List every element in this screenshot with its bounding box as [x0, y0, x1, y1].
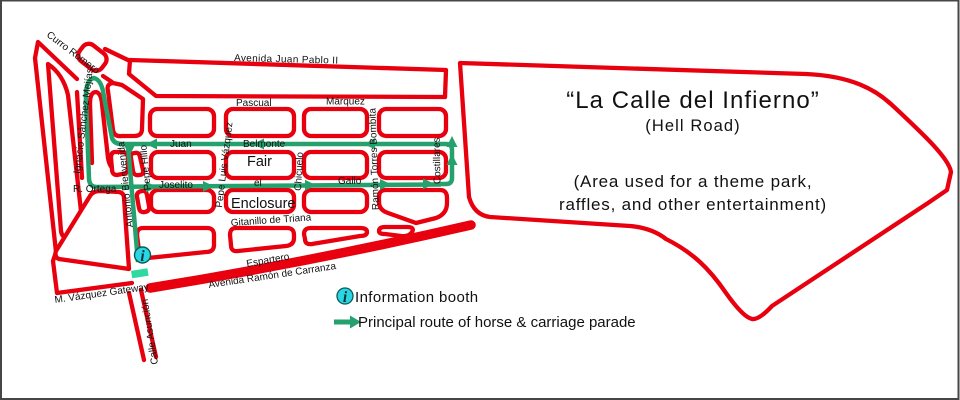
svg-text:(Hell Road): (Hell Road) [645, 117, 741, 135]
svg-text:Belmonte: Belmonte [243, 139, 286, 150]
svg-text:Juan: Juan [170, 139, 192, 150]
svg-text:Chicuelo: Chicuelo [293, 151, 306, 191]
svg-text:Joselito: Joselito [159, 180, 193, 191]
svg-text:Costillares: Costillares [432, 137, 444, 184]
svg-text:Márquez: Márquez [326, 97, 365, 108]
svg-text:R. Ortega: R. Ortega [73, 184, 117, 195]
svg-text:i: i [140, 248, 145, 265]
svg-text:Pascual: Pascual [236, 98, 272, 109]
svg-text:Information booth: Information booth [355, 289, 479, 306]
svg-text:(Area used for a theme park,: (Area used for a theme park, [574, 172, 813, 191]
svg-text:Fair: Fair [247, 154, 272, 170]
svg-text:Principal route of horse & car: Principal route of horse & carriage para… [358, 314, 636, 331]
svg-text:i: i [343, 289, 348, 306]
svg-text:Enclosure: Enclosure [231, 196, 295, 212]
svg-text:Gallo: Gallo [338, 176, 362, 187]
svg-text:el: el [254, 178, 262, 189]
svg-text:raffles, and other entertainme: raffles, and other entertainment) [559, 195, 827, 214]
svg-text:“La Calle del Infierno”: “La Calle del Infierno” [566, 87, 820, 114]
